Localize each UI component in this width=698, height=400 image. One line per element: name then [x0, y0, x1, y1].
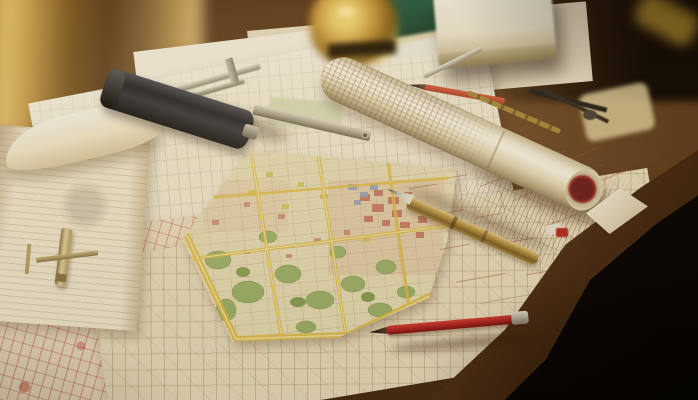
- desk-photo-scene: [0, 0, 698, 400]
- red-pin: [556, 228, 568, 237]
- red-pen-clip: [511, 311, 529, 325]
- brass-highlight: [338, 6, 354, 18]
- divider-hinge: [583, 110, 597, 120]
- white-book: [433, 0, 557, 69]
